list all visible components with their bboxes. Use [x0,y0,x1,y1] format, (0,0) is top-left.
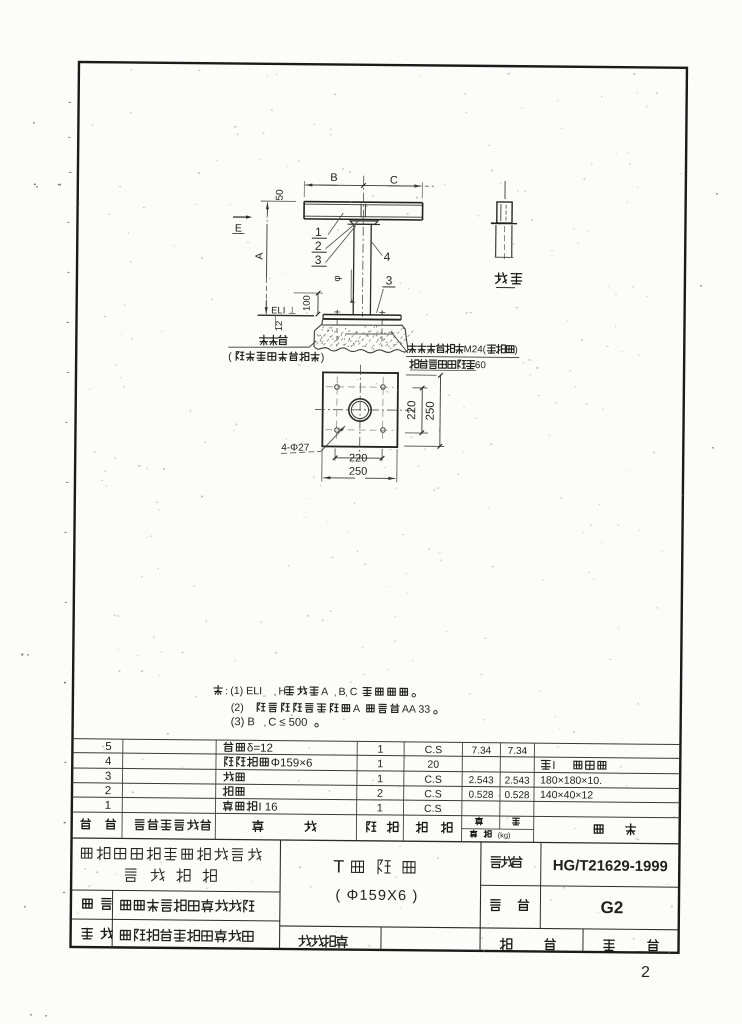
svg-text:T: T [333,856,344,876]
svg-text:(3) B: (3) B [231,716,255,728]
svg-text::: : [225,686,228,697]
svg-text:AA 33: AA 33 [402,703,430,715]
svg-text:7.34: 7.34 [472,746,492,757]
svg-text:C.S: C.S [424,774,442,786]
svg-text:1: 1 [377,802,383,814]
svg-text:5: 5 [105,741,112,753]
svg-text:20: 20 [427,759,439,771]
svg-text:2: 2 [377,788,383,800]
svg-text:ELI ⊥: ELI ⊥ [271,305,296,316]
svg-text:(2): (2) [231,702,244,714]
svg-text:140×40×12: 140×40×12 [540,789,593,802]
svg-text:1: 1 [377,773,383,785]
svg-text:,: , [345,688,348,698]
svg-text:3: 3 [386,273,393,287]
svg-text:2: 2 [315,239,322,253]
svg-text:( Φ159X6 ): ( Φ159X6 ) [335,888,418,905]
svg-text:4: 4 [105,756,112,768]
svg-text:100: 100 [302,295,313,311]
svg-text:C: C [350,686,358,698]
svg-text:δ=12: δ=12 [247,742,273,754]
svg-text:C.S: C.S [424,788,442,800]
svg-text:3: 3 [105,771,112,783]
svg-text:A: A [353,703,361,715]
svg-text:,: , [334,687,337,697]
svg-text:,: , [264,718,267,728]
svg-text:1: 1 [315,225,322,239]
svg-text:I: I [552,760,555,772]
svg-text:,: , [274,687,277,697]
svg-text:220: 220 [349,452,367,464]
svg-text:1: 1 [377,744,383,756]
svg-text:4: 4 [384,250,391,264]
svg-text:H: H [278,685,286,697]
svg-text:2.543: 2.543 [469,775,495,786]
svg-text:C.S: C.S [425,744,443,756]
svg-text:C ≤ 500: C ≤ 500 [268,716,307,728]
svg-text:2: 2 [641,964,650,981]
svg-text:250: 250 [425,401,437,420]
svg-text:Φ159×6: Φ159×6 [271,757,313,769]
svg-text:220: 220 [406,401,418,420]
svg-text:C: C [390,174,398,186]
svg-text:φ: φ [332,275,343,281]
svg-text:2: 2 [105,785,112,797]
svg-text:A: A [321,686,329,698]
svg-text:E: E [235,223,242,235]
svg-text:A: A [254,252,266,259]
svg-text:G2: G2 [600,898,623,917]
svg-text:(kg): (kg) [498,831,512,840]
svg-text:180×180×10.: 180×180×10. [540,774,602,787]
svg-text:2.543: 2.543 [505,776,531,787]
svg-text:B: B [330,172,337,184]
svg-text:1: 1 [377,758,383,770]
svg-text:M24(: M24( [464,344,487,355]
svg-text:60: 60 [475,360,487,371]
svg-text:(: ( [228,351,232,363]
svg-text:3: 3 [315,253,322,267]
svg-text:I 16: I 16 [258,801,277,813]
svg-text:): ) [515,345,518,356]
svg-text:7.34: 7.34 [508,746,528,757]
svg-text:0.528: 0.528 [504,790,530,801]
svg-text:HG/T21629-1999: HG/T21629-1999 [553,858,668,875]
svg-text:4-Φ27: 4-Φ27 [281,442,310,453]
svg-text:1: 1 [105,800,112,812]
svg-text:50: 50 [275,189,286,201]
svg-text:C.S: C.S [424,803,442,815]
svg-text:250: 250 [349,466,367,478]
svg-text:): ) [321,352,325,364]
svg-text:(1) ELI: (1) ELI [230,685,262,697]
svg-text:0.528: 0.528 [468,790,494,801]
